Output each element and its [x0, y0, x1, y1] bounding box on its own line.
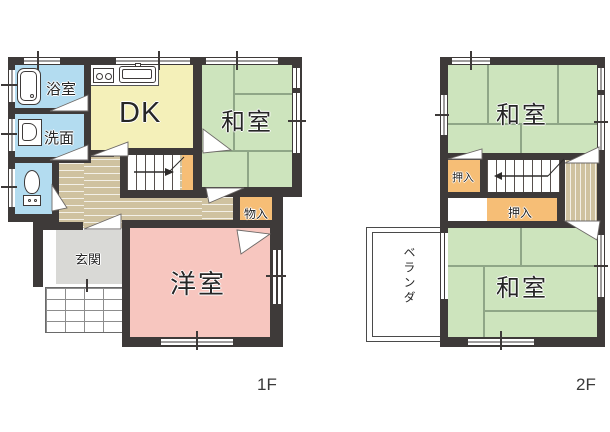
- closet-lower-label: 押入: [508, 204, 532, 221]
- closet-upper-label: 押入: [452, 169, 474, 185]
- tatami-line: [247, 150, 249, 187]
- wall: [52, 163, 59, 222]
- window-tick: [594, 121, 608, 123]
- sink-basin: [122, 69, 152, 79]
- dining-kitchen-label: DK: [119, 97, 161, 130]
- toilet-icon: [24, 170, 40, 194]
- window: [116, 58, 190, 64]
- entrance-label: 玄関: [75, 249, 101, 268]
- tatami-line: [233, 93, 292, 95]
- japanese-room-2f-north-label: 和室: [496, 95, 548, 130]
- wall: [8, 108, 85, 114]
- window-tick: [1, 133, 17, 135]
- window-tick: [435, 114, 449, 116]
- bathtub-inner: [20, 71, 37, 101]
- window: [293, 68, 300, 88]
- window-tick: [266, 275, 286, 277]
- western-room-label: 洋室: [170, 264, 226, 301]
- bathtub-drain: [30, 94, 34, 98]
- wall: [84, 150, 114, 157]
- entrance-porch: [45, 287, 124, 333]
- tatami-line: [557, 65, 559, 123]
- veranda-label: ベランダ: [401, 246, 418, 306]
- wall: [8, 157, 85, 163]
- window: [206, 58, 278, 64]
- faucet: [135, 63, 141, 67]
- window: [9, 169, 15, 207]
- window-tick: [470, 51, 472, 70]
- wall: [43, 222, 83, 230]
- stove-burner: [96, 73, 103, 80]
- wall: [33, 222, 43, 287]
- washroom-label: 洗面: [44, 127, 74, 148]
- hallway-1f-west: [58, 163, 84, 228]
- wall: [120, 148, 193, 155]
- window-tick: [288, 120, 306, 122]
- window-tick: [594, 265, 608, 267]
- kitchen-sink-icon: [119, 66, 156, 83]
- floor-plan-canvas: 浴室 洗面 DK 和室 物入 玄関 洋室 1F ベランダ: [0, 0, 610, 432]
- tatami-line: [483, 310, 597, 312]
- wall: [440, 153, 605, 160]
- hallway-2f: [565, 155, 597, 221]
- tatami-line: [483, 265, 485, 337]
- wall: [195, 187, 302, 197]
- wall: [440, 192, 487, 198]
- tatami-line: [487, 65, 489, 123]
- washbasin-icon: [18, 119, 42, 146]
- window-tick: [1, 186, 17, 188]
- veranda-door: [441, 233, 448, 299]
- window: [24, 58, 60, 64]
- window: [598, 68, 604, 90]
- window-tick: [236, 51, 238, 70]
- window: [9, 70, 15, 102]
- stove-burner: [105, 73, 112, 80]
- wall: [440, 221, 605, 228]
- wall: [120, 190, 207, 198]
- wall: [480, 192, 565, 198]
- window-tick: [86, 279, 88, 292]
- washbasin-bowl: [22, 123, 37, 141]
- stove-icon: [93, 68, 114, 83]
- staircase-1f: [127, 155, 180, 190]
- tatami-line: [520, 228, 522, 265]
- japanese-room-2f-south-label: 和室: [496, 268, 548, 303]
- window-tick: [500, 331, 502, 350]
- staircase-2f: [487, 160, 560, 192]
- wall: [122, 220, 130, 347]
- window-tick: [196, 331, 198, 350]
- bath-label: 浴室: [46, 78, 76, 99]
- window: [273, 250, 281, 304]
- tatami-line: [448, 265, 597, 267]
- floor-2f-label: 2F: [576, 375, 596, 395]
- japanese-room-1f-label: 和室: [221, 102, 273, 137]
- wall: [560, 155, 565, 192]
- toilet-tank-dot: [28, 199, 31, 202]
- window-tick: [1, 84, 17, 86]
- bathtub-icon: [17, 68, 41, 105]
- wall: [8, 214, 58, 222]
- wall: [193, 57, 202, 197]
- toilet-tank-dot: [34, 199, 37, 202]
- storage-label: 物入: [244, 205, 268, 222]
- wall: [233, 190, 240, 228]
- floor-1f-label: 1F: [257, 375, 277, 395]
- window: [293, 93, 300, 153]
- window-tick: [37, 51, 39, 70]
- window: [9, 119, 15, 151]
- veranda: ベランダ: [372, 232, 443, 337]
- toilet-tank: [23, 195, 41, 206]
- wall: [84, 65, 91, 163]
